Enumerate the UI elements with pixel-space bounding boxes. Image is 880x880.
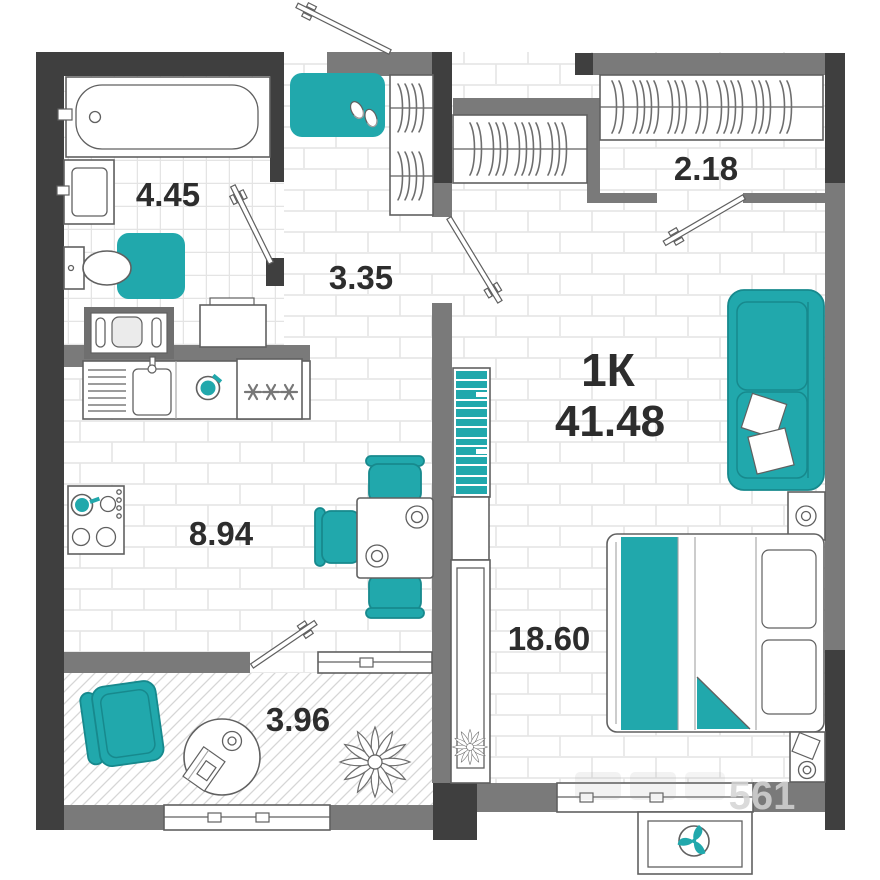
kitchen-balcony-window — [318, 652, 432, 673]
floor-plan-page: *** — [0, 0, 880, 880]
bed — [607, 534, 824, 732]
wall-wardrobe-bottom-left — [587, 193, 657, 203]
kitchen-area-label: 8.94 — [189, 515, 254, 552]
wall-right-dark — [825, 650, 845, 830]
toilet — [64, 247, 131, 289]
wall-kitchen-living-divider — [432, 303, 452, 783]
wall-hall-divider-top — [432, 183, 452, 217]
bathroom-sink — [57, 160, 114, 224]
wall-right-gray — [825, 183, 845, 650]
hall-closet-vertical — [390, 75, 433, 215]
sofa — [728, 290, 824, 490]
stove-unit: *** — [237, 359, 302, 419]
door-entry — [294, 0, 394, 59]
wall-closet-column — [432, 52, 452, 183]
wardrobe-rack — [600, 75, 823, 140]
bathroom-area-label: 4.45 — [136, 176, 200, 213]
floor-plan-svg: *** — [0, 0, 880, 880]
balcony-area-label: 3.96 — [266, 701, 330, 738]
wall-entry — [327, 52, 432, 76]
wall-bathroom-right — [270, 52, 284, 182]
kitchen-counter: *** — [83, 357, 310, 419]
wall-top-right — [593, 53, 825, 75]
wall-balcony — [64, 652, 250, 673]
wall-corner-top-right — [825, 53, 845, 183]
bed-pillow — [762, 640, 816, 714]
hallway-area-label: 3.35 — [329, 259, 393, 296]
balcony-table — [183, 719, 260, 795]
laundry-cabinet — [200, 298, 266, 347]
plan-title: 1К — [581, 344, 636, 396]
wardrobe-room — [600, 75, 823, 140]
wall-balcony-bottom-right — [330, 805, 433, 830]
wall-closet-band — [453, 98, 600, 115]
wall-left-outer — [36, 52, 64, 830]
bed-blanket — [621, 537, 678, 730]
wall-top-bathroom — [36, 52, 283, 76]
sofa-side-table — [788, 492, 825, 540]
balcony-armchair — [79, 680, 165, 770]
bathtub — [58, 77, 270, 157]
balcony-window — [164, 805, 330, 830]
bookshelf — [453, 368, 490, 497]
wall-top-cap — [575, 53, 593, 75]
bed-pillow — [762, 550, 816, 628]
wall-living-bottom-left — [477, 783, 557, 812]
wall-wardrobe-bottom-right — [743, 193, 825, 203]
wall-bottom-center-column — [433, 783, 477, 840]
chair-bottom — [369, 575, 421, 611]
wall-wardrobe-divider — [587, 98, 600, 203]
tv-stand — [451, 497, 490, 783]
living-area-label: 18.60 — [508, 620, 591, 657]
ac-fan-unit — [638, 812, 752, 874]
wardrobe-area-label: 2.18 — [674, 150, 738, 187]
plan-total-area: 41.48 — [555, 397, 665, 446]
washing-machine — [84, 307, 174, 359]
dining-table — [357, 498, 433, 578]
watermark-text: 561 — [729, 774, 796, 818]
hall-closet-horizontal — [453, 115, 587, 183]
cooktop — [68, 486, 124, 554]
wall-balcony-bottom-left — [64, 805, 164, 830]
hallway-rug — [290, 73, 385, 137]
